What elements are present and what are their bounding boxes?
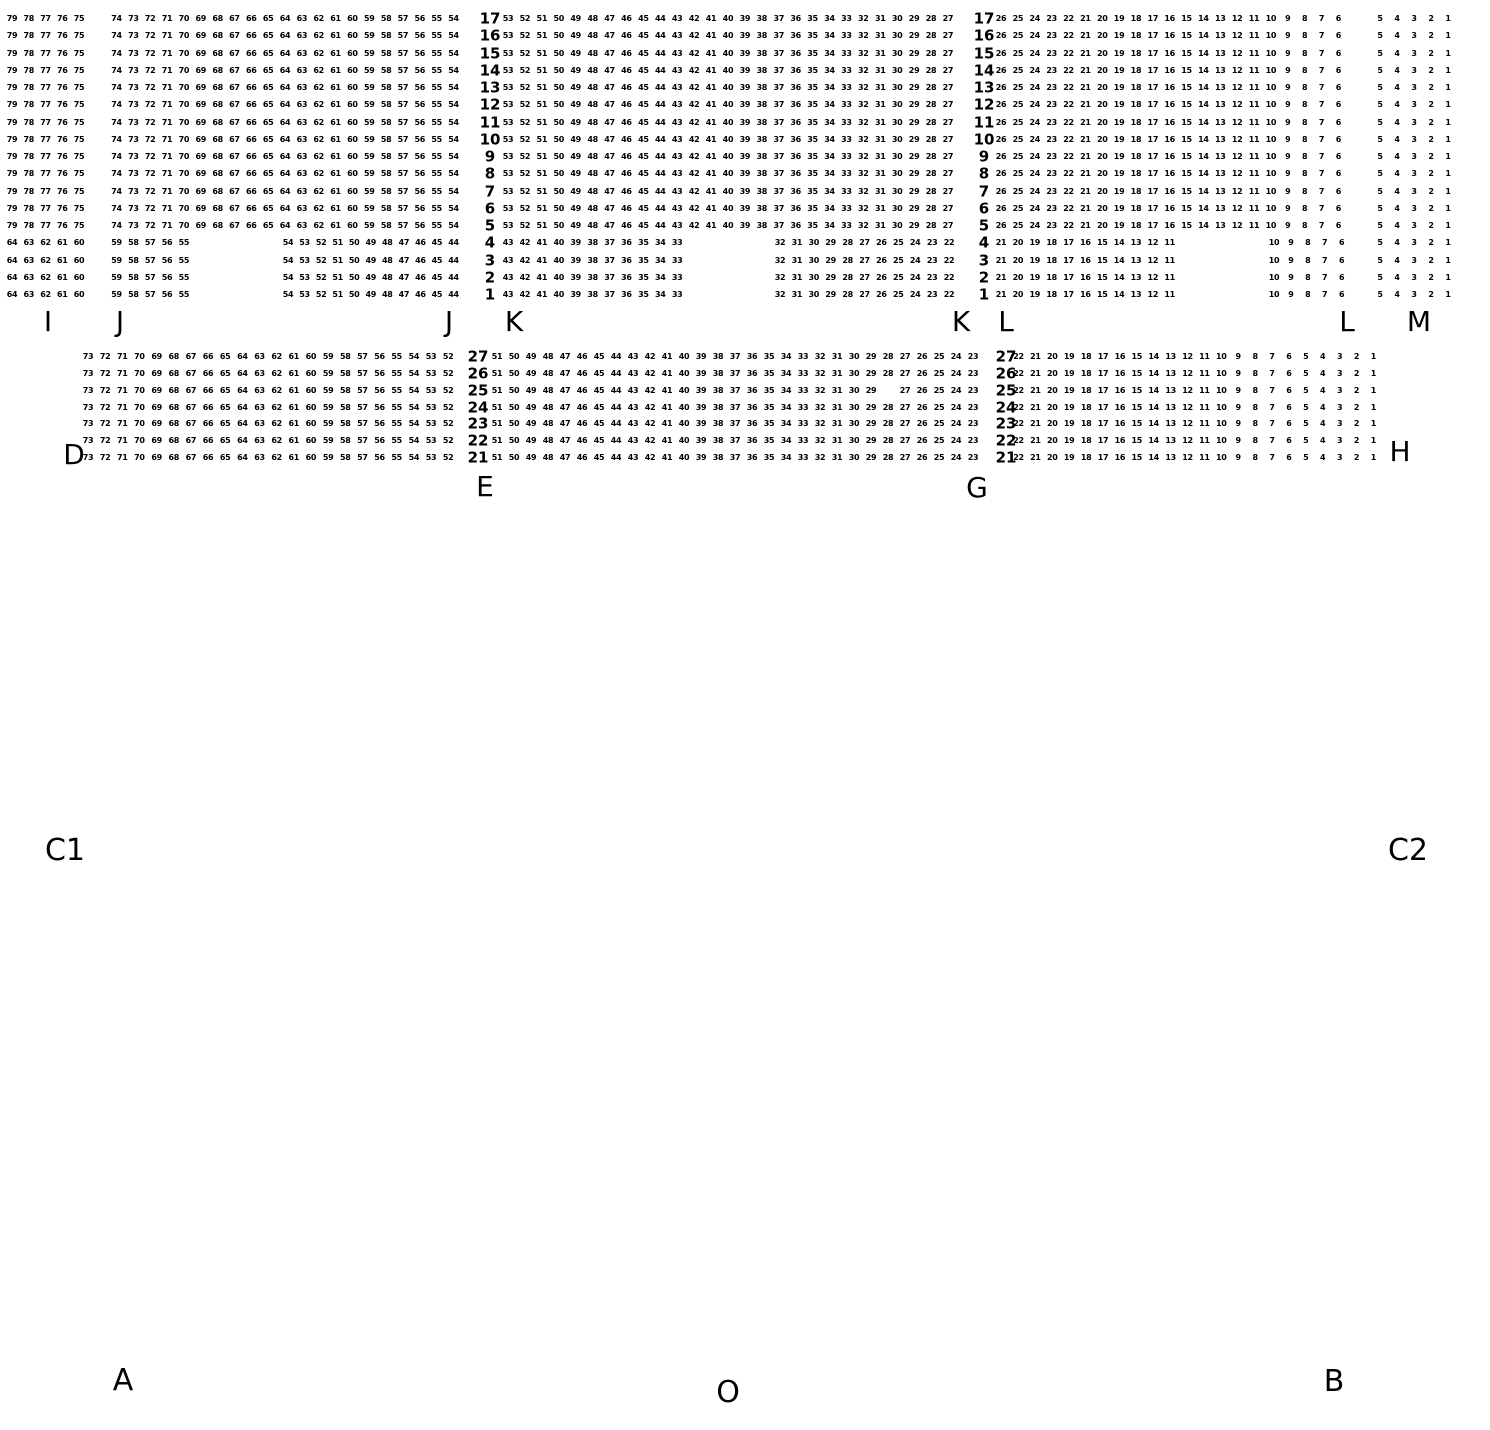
- seat-L-row7-9[interactable]: 9: [1285, 188, 1290, 196]
- seat-middle-row23-38[interactable]: 38: [713, 420, 724, 428]
- seat-K-row13-47[interactable]: 47: [604, 84, 615, 92]
- seat-M-row10-5[interactable]: 5: [1377, 136, 1382, 144]
- seat-J-row14-54[interactable]: 54: [448, 67, 459, 75]
- seat-K-row13-33[interactable]: 33: [841, 84, 852, 92]
- seat-L-row1-16[interactable]: 16: [1080, 291, 1091, 299]
- seat-M-row7-2[interactable]: 2: [1428, 188, 1433, 196]
- seat-J-row4-55[interactable]: 55: [179, 239, 190, 247]
- seat-K-row3-23[interactable]: 23: [927, 257, 938, 265]
- seat-right-row26-20[interactable]: 20: [1047, 370, 1058, 378]
- seat-middle-row26-29[interactable]: 29: [866, 370, 877, 378]
- seat-K-row2-31[interactable]: 31: [792, 274, 803, 282]
- seat-J-row4-50[interactable]: 50: [349, 239, 360, 247]
- seat-K-row10-52[interactable]: 52: [520, 136, 531, 144]
- seat-J-row13-63[interactable]: 63: [297, 84, 308, 92]
- seat-K-row6-39[interactable]: 39: [740, 205, 751, 213]
- seat-left-row21-66[interactable]: 66: [203, 454, 214, 462]
- seat-middle-row21-41[interactable]: 41: [662, 454, 673, 462]
- seat-J-row15-66[interactable]: 66: [246, 50, 257, 58]
- seat-right-row21-10[interactable]: 10: [1216, 454, 1227, 462]
- seat-left-row25-58[interactable]: 58: [340, 387, 351, 395]
- seat-L-row7-23[interactable]: 23: [1046, 188, 1057, 196]
- seat-M-row2-3[interactable]: 3: [1411, 274, 1416, 282]
- seat-L-row15-17[interactable]: 17: [1148, 50, 1159, 58]
- seat-J-row8-67[interactable]: 67: [229, 170, 240, 178]
- seat-middle-row23-23[interactable]: 23: [968, 420, 979, 428]
- seat-M-row10-1[interactable]: 1: [1445, 136, 1450, 144]
- seat-K-row14-27[interactable]: 27: [943, 67, 954, 75]
- seat-L-row1-12[interactable]: 12: [1148, 291, 1159, 299]
- seat-J-row9-59[interactable]: 59: [364, 153, 375, 161]
- seat-K-row2-28[interactable]: 28: [842, 274, 853, 282]
- seat-J-row3-51[interactable]: 51: [332, 257, 343, 265]
- seat-I-row1-62[interactable]: 62: [40, 291, 51, 299]
- seat-middle-row24-41[interactable]: 41: [662, 404, 673, 412]
- seat-left-row27-52[interactable]: 52: [443, 353, 454, 361]
- seat-K-row9-48[interactable]: 48: [587, 153, 598, 161]
- seat-J-row7-55[interactable]: 55: [431, 188, 442, 196]
- seat-L-row11-7[interactable]: 7: [1319, 119, 1324, 127]
- seat-left-row22-56[interactable]: 56: [374, 437, 385, 445]
- seat-middle-row25-48[interactable]: 48: [543, 387, 554, 395]
- seat-J-row15-61[interactable]: 61: [330, 50, 341, 58]
- seat-I-row17-79[interactable]: 79: [7, 15, 18, 23]
- seat-right-row23-15[interactable]: 15: [1132, 420, 1143, 428]
- seat-K-row9-30[interactable]: 30: [892, 153, 903, 161]
- seat-L-row5-25[interactable]: 25: [1013, 222, 1024, 230]
- seat-middle-row23-32[interactable]: 32: [815, 420, 826, 428]
- seat-J-row13-54[interactable]: 54: [448, 84, 459, 92]
- seat-J-row15-67[interactable]: 67: [229, 50, 240, 58]
- seat-right-row24-19[interactable]: 19: [1064, 404, 1075, 412]
- seat-J-row7-67[interactable]: 67: [229, 188, 240, 196]
- seat-L-row8-19[interactable]: 19: [1114, 170, 1125, 178]
- seat-K-row5-45[interactable]: 45: [638, 222, 649, 230]
- seat-K-row8-44[interactable]: 44: [655, 170, 666, 178]
- seat-right-row22-11[interactable]: 11: [1199, 437, 1210, 445]
- seat-K-row5-40[interactable]: 40: [723, 222, 734, 230]
- seat-right-row25-21[interactable]: 21: [1030, 387, 1041, 395]
- seat-L-row17-24[interactable]: 24: [1029, 15, 1040, 23]
- seat-M-row13-3[interactable]: 3: [1411, 84, 1416, 92]
- seat-J-row2-53[interactable]: 53: [299, 274, 310, 282]
- seat-K-row7-38[interactable]: 38: [757, 188, 768, 196]
- seat-M-row3-5[interactable]: 5: [1377, 257, 1382, 265]
- seat-K-row16-33[interactable]: 33: [841, 32, 852, 40]
- seat-L-row3-9[interactable]: 9: [1288, 257, 1293, 265]
- seat-right-row24-5[interactable]: 5: [1303, 404, 1308, 412]
- seat-L-row13-10[interactable]: 10: [1266, 84, 1277, 92]
- seat-L-row4-14[interactable]: 14: [1114, 239, 1125, 247]
- seat-J-row6-56[interactable]: 56: [415, 205, 426, 213]
- seat-middle-row26-23[interactable]: 23: [968, 370, 979, 378]
- seat-L-row8-23[interactable]: 23: [1046, 170, 1057, 178]
- seat-L-row7-6[interactable]: 6: [1336, 188, 1341, 196]
- seat-K-row3-33[interactable]: 33: [672, 257, 683, 265]
- seat-middle-row25-44[interactable]: 44: [611, 387, 622, 395]
- seat-K-row15-34[interactable]: 34: [824, 50, 835, 58]
- seat-L-row12-16[interactable]: 16: [1164, 101, 1175, 109]
- seat-J-row15-58[interactable]: 58: [381, 50, 392, 58]
- seat-I-row6-76[interactable]: 76: [57, 205, 68, 213]
- seat-L-row2-8[interactable]: 8: [1305, 274, 1310, 282]
- seat-M-row16-5[interactable]: 5: [1377, 32, 1382, 40]
- seat-J-row16-69[interactable]: 69: [195, 32, 206, 40]
- seat-left-row27-67[interactable]: 67: [186, 353, 197, 361]
- seat-L-row13-23[interactable]: 23: [1046, 84, 1057, 92]
- seat-left-row25-52[interactable]: 52: [443, 387, 454, 395]
- seat-right-row26-15[interactable]: 15: [1132, 370, 1143, 378]
- seat-L-row15-24[interactable]: 24: [1029, 50, 1040, 58]
- seat-right-row25-15[interactable]: 15: [1132, 387, 1143, 395]
- seat-I-row4-63[interactable]: 63: [23, 239, 34, 247]
- seat-middle-row24-26[interactable]: 26: [917, 404, 928, 412]
- seat-J-row5-67[interactable]: 67: [229, 222, 240, 230]
- seat-I-row10-76[interactable]: 76: [57, 136, 68, 144]
- seat-J-row17-66[interactable]: 66: [246, 15, 257, 23]
- seat-J-row16-74[interactable]: 74: [111, 32, 122, 40]
- seat-L-row13-13[interactable]: 13: [1215, 84, 1226, 92]
- seat-left-row24-60[interactable]: 60: [306, 404, 317, 412]
- seat-M-row8-4[interactable]: 4: [1394, 170, 1399, 178]
- seat-J-row5-60[interactable]: 60: [347, 222, 358, 230]
- seat-J-row5-61[interactable]: 61: [330, 222, 341, 230]
- seat-J-row11-60[interactable]: 60: [347, 119, 358, 127]
- seat-K-row7-45[interactable]: 45: [638, 188, 649, 196]
- seat-M-row6-5[interactable]: 5: [1377, 205, 1382, 213]
- seat-K-row7-27[interactable]: 27: [943, 188, 954, 196]
- seat-K-row2-34[interactable]: 34: [655, 274, 666, 282]
- seat-right-row21-19[interactable]: 19: [1064, 454, 1075, 462]
- seat-middle-row25-42[interactable]: 42: [645, 387, 656, 395]
- seat-J-row11-74[interactable]: 74: [111, 119, 122, 127]
- seat-K-row15-36[interactable]: 36: [790, 50, 801, 58]
- seat-M-row13-1[interactable]: 1: [1445, 84, 1450, 92]
- seat-K-row7-37[interactable]: 37: [773, 188, 784, 196]
- seat-left-row25-68[interactable]: 68: [168, 387, 179, 395]
- seat-L-row3-15[interactable]: 15: [1097, 257, 1108, 265]
- seat-K-row11-50[interactable]: 50: [553, 119, 564, 127]
- seat-J-row12-73[interactable]: 73: [128, 101, 139, 109]
- seat-middle-row25-47[interactable]: 47: [560, 387, 571, 395]
- seat-J-row3-56[interactable]: 56: [162, 257, 173, 265]
- seat-left-row27-57[interactable]: 57: [357, 353, 368, 361]
- seat-left-row25-57[interactable]: 57: [357, 387, 368, 395]
- seat-J-row3-50[interactable]: 50: [349, 257, 360, 265]
- seat-right-row22-15[interactable]: 15: [1132, 437, 1143, 445]
- seat-L-row11-17[interactable]: 17: [1148, 119, 1159, 127]
- seat-K-row4-29[interactable]: 29: [825, 239, 836, 247]
- seat-K-row7-30[interactable]: 30: [892, 188, 903, 196]
- seat-L-row17-16[interactable]: 16: [1164, 15, 1175, 23]
- seat-right-row23-19[interactable]: 19: [1064, 420, 1075, 428]
- seat-K-row1-35[interactable]: 35: [638, 291, 649, 299]
- seat-right-row22-1[interactable]: 1: [1371, 437, 1376, 445]
- seat-K-row3-26[interactable]: 26: [876, 257, 887, 265]
- seat-left-row26-57[interactable]: 57: [357, 370, 368, 378]
- seat-L-row14-23[interactable]: 23: [1046, 67, 1057, 75]
- seat-J-row11-56[interactable]: 56: [415, 119, 426, 127]
- seat-K-row5-33[interactable]: 33: [841, 222, 852, 230]
- seat-L-row8-14[interactable]: 14: [1198, 170, 1209, 178]
- seat-M-row9-4[interactable]: 4: [1394, 153, 1399, 161]
- seat-left-row21-64[interactable]: 64: [237, 454, 248, 462]
- seat-K-row12-44[interactable]: 44: [655, 101, 666, 109]
- seat-K-row17-51[interactable]: 51: [537, 15, 548, 23]
- seat-J-row8-61[interactable]: 61: [330, 170, 341, 178]
- seat-middle-row21-40[interactable]: 40: [679, 454, 690, 462]
- seat-right-row27-19[interactable]: 19: [1064, 353, 1075, 361]
- seat-J-row13-57[interactable]: 57: [398, 84, 409, 92]
- seat-left-row26-62[interactable]: 62: [271, 370, 282, 378]
- seat-L-row3-12[interactable]: 12: [1148, 257, 1159, 265]
- seat-left-row25-67[interactable]: 67: [186, 387, 197, 395]
- seat-middle-row25-41[interactable]: 41: [662, 387, 673, 395]
- seat-left-row23-56[interactable]: 56: [374, 420, 385, 428]
- seat-middle-row23-28[interactable]: 28: [883, 420, 894, 428]
- seat-J-row8-71[interactable]: 71: [162, 170, 173, 178]
- seat-K-row9-28[interactable]: 28: [926, 153, 937, 161]
- seat-right-row21-1[interactable]: 1: [1371, 454, 1376, 462]
- seat-I-row12-76[interactable]: 76: [57, 101, 68, 109]
- seat-K-row1-37[interactable]: 37: [604, 291, 615, 299]
- seat-J-row7-63[interactable]: 63: [297, 188, 308, 196]
- seat-middle-row23-26[interactable]: 26: [917, 420, 928, 428]
- seat-L-row16-24[interactable]: 24: [1029, 32, 1040, 40]
- seat-J-row9-61[interactable]: 61: [330, 153, 341, 161]
- seat-K-row6-41[interactable]: 41: [706, 205, 717, 213]
- seat-M-row4-3[interactable]: 3: [1411, 239, 1416, 247]
- seat-J-row9-71[interactable]: 71: [162, 153, 173, 161]
- seat-middle-row21-43[interactable]: 43: [628, 454, 639, 462]
- seat-K-row12-43[interactable]: 43: [672, 101, 683, 109]
- seat-K-row12-51[interactable]: 51: [537, 101, 548, 109]
- seat-L-row16-20[interactable]: 20: [1097, 32, 1108, 40]
- seat-J-row10-54[interactable]: 54: [448, 136, 459, 144]
- seat-J-row5-62[interactable]: 62: [313, 222, 324, 230]
- seat-left-row27-61[interactable]: 61: [289, 353, 300, 361]
- seat-L-row5-16[interactable]: 16: [1164, 222, 1175, 230]
- seat-K-row2-33[interactable]: 33: [672, 274, 683, 282]
- seat-K-row15-32[interactable]: 32: [858, 50, 869, 58]
- seat-I-row12-77[interactable]: 77: [40, 101, 51, 109]
- seat-right-row23-11[interactable]: 11: [1199, 420, 1210, 428]
- seat-M-row12-5[interactable]: 5: [1377, 101, 1382, 109]
- seat-J-row11-58[interactable]: 58: [381, 119, 392, 127]
- seat-right-row23-9[interactable]: 9: [1236, 420, 1241, 428]
- seat-left-row25-54[interactable]: 54: [409, 387, 420, 395]
- seat-K-row4-30[interactable]: 30: [809, 239, 820, 247]
- seat-left-row23-52[interactable]: 52: [443, 420, 454, 428]
- seat-L-row13-24[interactable]: 24: [1029, 84, 1040, 92]
- seat-right-row25-7[interactable]: 7: [1269, 387, 1274, 395]
- seat-L-row8-26[interactable]: 26: [996, 170, 1007, 178]
- seat-L-row5-7[interactable]: 7: [1319, 222, 1324, 230]
- seat-right-row25-3[interactable]: 3: [1337, 387, 1342, 395]
- seat-J-row9-70[interactable]: 70: [179, 153, 190, 161]
- seat-J-row14-67[interactable]: 67: [229, 67, 240, 75]
- seat-left-row25-60[interactable]: 60: [306, 387, 317, 395]
- seat-L-row1-18[interactable]: 18: [1046, 291, 1057, 299]
- seat-M-row7-4[interactable]: 4: [1394, 188, 1399, 196]
- seat-K-row10-39[interactable]: 39: [740, 136, 751, 144]
- seat-J-row9-67[interactable]: 67: [229, 153, 240, 161]
- seat-L-row16-14[interactable]: 14: [1198, 32, 1209, 40]
- seat-right-row23-17[interactable]: 17: [1098, 420, 1109, 428]
- seat-K-row3-25[interactable]: 25: [893, 257, 904, 265]
- seat-right-row24-9[interactable]: 9: [1236, 404, 1241, 412]
- seat-K-row17-46[interactable]: 46: [621, 15, 632, 23]
- seat-J-row4-48[interactable]: 48: [382, 239, 393, 247]
- seat-left-row22-68[interactable]: 68: [168, 437, 179, 445]
- seat-K-row1-28[interactable]: 28: [842, 291, 853, 299]
- seat-K-row11-49[interactable]: 49: [570, 119, 581, 127]
- seat-K-row10-46[interactable]: 46: [621, 136, 632, 144]
- seat-J-row12-71[interactable]: 71: [162, 101, 173, 109]
- seat-M-row7-1[interactable]: 1: [1445, 188, 1450, 196]
- seat-J-row13-60[interactable]: 60: [347, 84, 358, 92]
- seat-K-row4-32[interactable]: 32: [775, 239, 786, 247]
- seat-K-row6-35[interactable]: 35: [807, 205, 818, 213]
- seat-K-row17-33[interactable]: 33: [841, 15, 852, 23]
- seat-M-row13-2[interactable]: 2: [1428, 84, 1433, 92]
- seat-middle-row24-39[interactable]: 39: [696, 404, 707, 412]
- seat-middle-row26-37[interactable]: 37: [730, 370, 741, 378]
- seat-middle-row22-49[interactable]: 49: [526, 437, 537, 445]
- seat-M-row2-1[interactable]: 1: [1445, 274, 1450, 282]
- seat-J-row17-59[interactable]: 59: [364, 15, 375, 23]
- seat-K-row14-48[interactable]: 48: [587, 67, 598, 75]
- seat-middle-row22-47[interactable]: 47: [560, 437, 571, 445]
- seat-right-row23-3[interactable]: 3: [1337, 420, 1342, 428]
- seat-L-row1-8[interactable]: 8: [1305, 291, 1310, 299]
- seat-K-row5-50[interactable]: 50: [553, 222, 564, 230]
- seat-K-row6-47[interactable]: 47: [604, 205, 615, 213]
- seat-L-row9-12[interactable]: 12: [1232, 153, 1243, 161]
- seat-K-row8-33[interactable]: 33: [841, 170, 852, 178]
- seat-left-row27-65[interactable]: 65: [220, 353, 231, 361]
- seat-J-row17-71[interactable]: 71: [162, 15, 173, 23]
- seat-L-row13-8[interactable]: 8: [1302, 84, 1307, 92]
- seat-K-row14-33[interactable]: 33: [841, 67, 852, 75]
- seat-K-row5-32[interactable]: 32: [858, 222, 869, 230]
- seat-L-row9-7[interactable]: 7: [1319, 153, 1324, 161]
- seat-I-row5-77[interactable]: 77: [40, 222, 51, 230]
- seat-M-row16-2[interactable]: 2: [1428, 32, 1433, 40]
- seat-J-row6-69[interactable]: 69: [195, 205, 206, 213]
- seat-L-row15-14[interactable]: 14: [1198, 50, 1209, 58]
- seat-left-row27-69[interactable]: 69: [151, 353, 162, 361]
- seat-middle-row23-39[interactable]: 39: [696, 420, 707, 428]
- seat-left-row21-70[interactable]: 70: [134, 454, 145, 462]
- seat-K-row16-28[interactable]: 28: [926, 32, 937, 40]
- seat-middle-row22-41[interactable]: 41: [662, 437, 673, 445]
- seat-middle-row27-35[interactable]: 35: [764, 353, 775, 361]
- seat-J-row2-52[interactable]: 52: [316, 274, 327, 282]
- seat-J-row7-58[interactable]: 58: [381, 188, 392, 196]
- seat-J-row1-45[interactable]: 45: [432, 291, 443, 299]
- seat-L-row7-14[interactable]: 14: [1198, 188, 1209, 196]
- seat-J-row8-70[interactable]: 70: [179, 170, 190, 178]
- seat-L-row16-16[interactable]: 16: [1164, 32, 1175, 40]
- seat-M-row2-2[interactable]: 2: [1428, 274, 1433, 282]
- seat-L-row15-11[interactable]: 11: [1249, 50, 1260, 58]
- seat-J-row14-58[interactable]: 58: [381, 67, 392, 75]
- seat-J-row16-55[interactable]: 55: [431, 32, 442, 40]
- seat-J-row1-46[interactable]: 46: [415, 291, 426, 299]
- seat-left-row26-58[interactable]: 58: [340, 370, 351, 378]
- seat-left-row22-60[interactable]: 60: [306, 437, 317, 445]
- seat-L-row4-20[interactable]: 20: [1013, 239, 1024, 247]
- seat-L-row17-14[interactable]: 14: [1198, 15, 1209, 23]
- seat-L-row10-25[interactable]: 25: [1013, 136, 1024, 144]
- seat-left-row22-55[interactable]: 55: [391, 437, 402, 445]
- seat-J-row13-67[interactable]: 67: [229, 84, 240, 92]
- seat-L-row14-26[interactable]: 26: [996, 67, 1007, 75]
- seat-K-row1-32[interactable]: 32: [775, 291, 786, 299]
- seat-K-row10-53[interactable]: 53: [503, 136, 514, 144]
- seat-J-row9-65[interactable]: 65: [263, 153, 274, 161]
- seat-J-row9-66[interactable]: 66: [246, 153, 257, 161]
- seat-I-row8-76[interactable]: 76: [57, 170, 68, 178]
- seat-I-row2-61[interactable]: 61: [57, 274, 68, 282]
- seat-L-row14-8[interactable]: 8: [1302, 67, 1307, 75]
- seat-middle-row22-29[interactable]: 29: [866, 437, 877, 445]
- seat-left-row22-57[interactable]: 57: [357, 437, 368, 445]
- seat-middle-row27-23[interactable]: 23: [968, 353, 979, 361]
- seat-middle-row25-43[interactable]: 43: [628, 387, 639, 395]
- seat-L-row6-6[interactable]: 6: [1336, 205, 1341, 213]
- seat-J-row4-45[interactable]: 45: [432, 239, 443, 247]
- seat-K-row16-30[interactable]: 30: [892, 32, 903, 40]
- seat-K-row4-31[interactable]: 31: [792, 239, 803, 247]
- seat-K-row6-51[interactable]: 51: [537, 205, 548, 213]
- seat-K-row10-43[interactable]: 43: [672, 136, 683, 144]
- seat-middle-row23-29[interactable]: 29: [866, 420, 877, 428]
- seat-L-row5-20[interactable]: 20: [1097, 222, 1108, 230]
- seat-K-row13-46[interactable]: 46: [621, 84, 632, 92]
- seat-left-row25-65[interactable]: 65: [220, 387, 231, 395]
- seat-middle-row22-28[interactable]: 28: [883, 437, 894, 445]
- seat-K-row10-47[interactable]: 47: [604, 136, 615, 144]
- seat-middle-row27-43[interactable]: 43: [628, 353, 639, 361]
- seat-left-row27-72[interactable]: 72: [100, 353, 111, 361]
- seat-L-row6-10[interactable]: 10: [1266, 205, 1277, 213]
- seat-middle-row25-27[interactable]: 27: [900, 387, 911, 395]
- seat-L-row4-21[interactable]: 21: [996, 239, 1007, 247]
- seat-M-row16-1[interactable]: 1: [1445, 32, 1450, 40]
- seat-J-row1-58[interactable]: 58: [128, 291, 139, 299]
- seat-K-row8-50[interactable]: 50: [553, 170, 564, 178]
- seat-I-row9-77[interactable]: 77: [40, 153, 51, 161]
- seat-L-row12-18[interactable]: 18: [1131, 101, 1142, 109]
- seat-K-row5-34[interactable]: 34: [824, 222, 835, 230]
- seat-K-row16-44[interactable]: 44: [655, 32, 666, 40]
- seat-J-row3-53[interactable]: 53: [299, 257, 310, 265]
- seat-left-row27-59[interactable]: 59: [323, 353, 334, 361]
- seat-middle-row21-30[interactable]: 30: [849, 454, 860, 462]
- seat-J-row11-59[interactable]: 59: [364, 119, 375, 127]
- seat-L-row10-20[interactable]: 20: [1097, 136, 1108, 144]
- seat-K-row12-37[interactable]: 37: [773, 101, 784, 109]
- seat-K-row10-40[interactable]: 40: [723, 136, 734, 144]
- seat-J-row10-58[interactable]: 58: [381, 136, 392, 144]
- seat-right-row26-4[interactable]: 4: [1320, 370, 1325, 378]
- seat-L-row6-19[interactable]: 19: [1114, 205, 1125, 213]
- seat-J-row3-59[interactable]: 59: [111, 257, 122, 265]
- seat-middle-row27-50[interactable]: 50: [509, 353, 520, 361]
- seat-L-row6-26[interactable]: 26: [996, 205, 1007, 213]
